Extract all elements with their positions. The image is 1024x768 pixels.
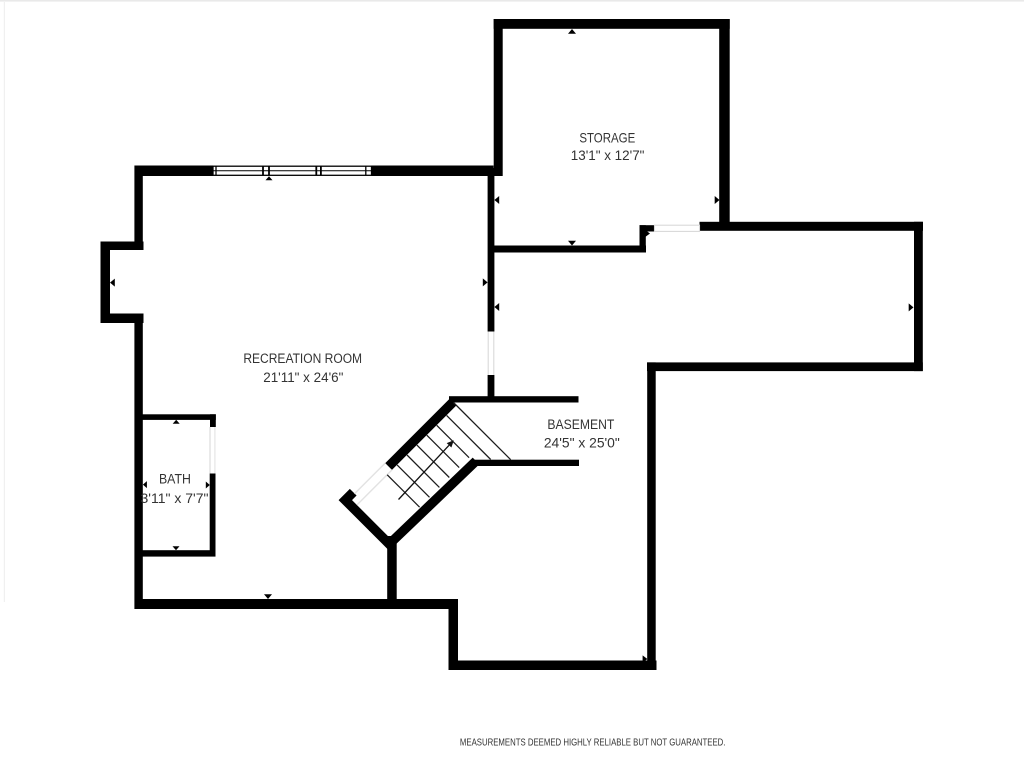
svg-text:24'5" x 25'0": 24'5" x 25'0" [544,435,620,451]
svg-text:BASEMENT: BASEMENT [547,416,614,432]
svg-text:MEASUREMENTS DEEMED HIGHLY REL: MEASUREMENTS DEEMED HIGHLY RELIABLE BUT … [460,737,726,748]
svg-text:BATH: BATH [159,471,191,487]
svg-text:RECREATION ROOM: RECREATION ROOM [243,350,362,366]
svg-text:13'1" x 12'7": 13'1" x 12'7" [571,148,645,163]
svg-text:STORAGE: STORAGE [579,129,635,145]
svg-text:21'11" x 24'6": 21'11" x 24'6" [263,370,343,385]
svg-text:3'11" x 7'7": 3'11" x 7'7" [141,490,209,506]
